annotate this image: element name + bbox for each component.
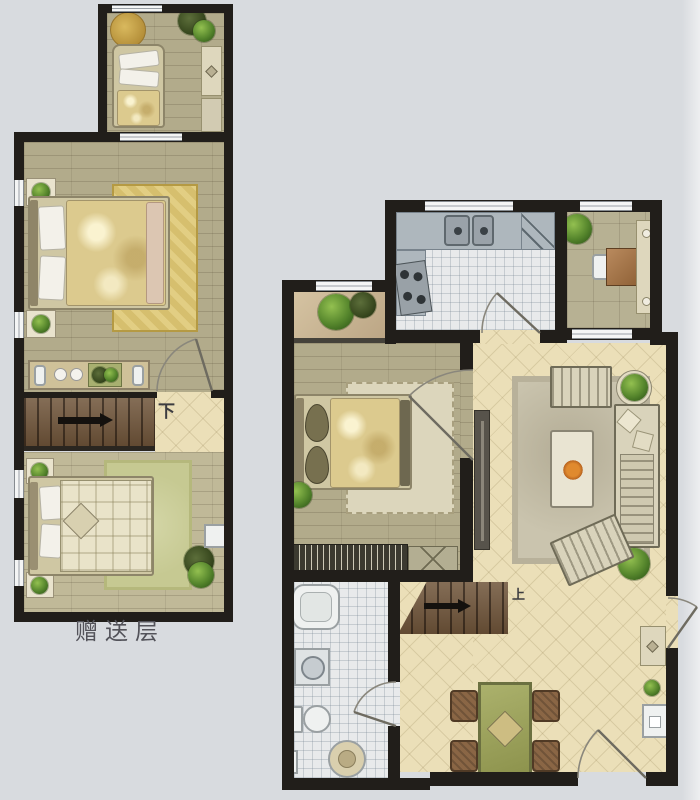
foot-blanket	[146, 202, 164, 304]
plant-icon	[32, 315, 50, 333]
stairs-down-label: 下	[158, 404, 175, 421]
plant-icon	[188, 562, 214, 588]
wall	[460, 458, 473, 570]
bookshelf-icon	[292, 544, 408, 572]
basin-icon	[328, 740, 366, 778]
footboard	[400, 400, 410, 486]
lamp-icon	[34, 365, 46, 386]
burner	[403, 291, 413, 301]
plant-icon	[644, 680, 660, 696]
cabinet-icon	[201, 98, 222, 132]
lamp-icon	[132, 365, 144, 386]
burner	[413, 272, 423, 282]
plant-icon	[193, 20, 215, 42]
wall	[211, 390, 224, 398]
plant-icon	[104, 368, 118, 382]
wall	[14, 132, 111, 142]
dish-icon	[54, 368, 67, 381]
wall	[388, 726, 400, 778]
pillow-icon	[118, 68, 159, 87]
window-icon	[14, 560, 24, 586]
pillow-icon	[305, 404, 329, 442]
toilet-icon	[303, 705, 331, 733]
dining-chair-icon	[450, 740, 478, 772]
plant-icon	[621, 374, 648, 401]
duvet	[330, 398, 400, 488]
tv-console-icon	[474, 410, 490, 550]
wall	[282, 280, 294, 790]
tv-screen	[481, 421, 484, 541]
bay-plant-icon	[350, 292, 376, 318]
stair-arrow-head	[100, 413, 113, 427]
dining-chair-icon	[532, 690, 560, 722]
cabinet-panel	[649, 716, 661, 728]
burner	[416, 294, 426, 304]
small-table-icon	[606, 248, 640, 286]
window-icon	[112, 5, 162, 12]
stair-arrow	[58, 417, 100, 424]
centerpiece-icon	[487, 711, 524, 748]
cabinet-icon	[408, 546, 458, 572]
stair-landing-floor	[155, 392, 224, 452]
bedroom-door-threshold	[460, 370, 473, 458]
stair-arrow	[424, 603, 458, 609]
balcony-door-threshold	[666, 596, 678, 648]
floor-plan-canvas: 下 赠送层	[0, 0, 700, 800]
pillow-icon	[38, 255, 66, 300]
dresser-icon	[28, 360, 150, 390]
planter-box-icon	[88, 363, 122, 387]
coffee-table-icon	[550, 430, 594, 508]
drain	[480, 227, 488, 235]
corner-planter	[26, 310, 56, 338]
double-bed-icon	[294, 394, 412, 490]
wall	[282, 570, 473, 582]
wall	[555, 212, 567, 332]
loveseat-icon	[550, 366, 612, 408]
washing-machine-icon	[294, 648, 330, 686]
headboard	[30, 482, 38, 570]
tub-inner	[300, 592, 332, 622]
shoe-cabinet-icon	[640, 626, 666, 666]
wall	[98, 4, 107, 141]
stairs-up-label: 上	[512, 589, 525, 602]
kitchen-door-threshold	[480, 330, 540, 344]
wall	[430, 772, 578, 786]
flower-decor-icon	[563, 460, 583, 480]
burner	[399, 269, 409, 279]
sofa-cushions	[620, 454, 654, 544]
window-icon	[14, 470, 24, 498]
window-icon	[572, 329, 632, 339]
staircase-down	[24, 398, 155, 446]
window-icon	[425, 201, 513, 211]
basin-bowl	[338, 750, 356, 768]
wall	[14, 392, 157, 398]
bed-icon	[28, 476, 154, 576]
pillow-icon	[118, 50, 160, 71]
window-icon	[14, 180, 24, 206]
plant-icon	[31, 577, 48, 594]
pillow-icon	[305, 446, 329, 484]
dining-chair-icon	[532, 740, 560, 772]
headboard	[296, 398, 304, 488]
washer-drum	[301, 656, 325, 680]
corner-counter	[521, 212, 555, 250]
lower-plan-title: 赠送层	[50, 618, 190, 648]
pillow-icon	[38, 205, 66, 250]
wall	[385, 200, 396, 344]
round-rug-icon	[110, 12, 146, 48]
wall	[650, 200, 662, 345]
paper-edge-highlight	[682, 0, 700, 800]
wall	[224, 4, 233, 622]
headboard	[30, 200, 38, 306]
window-icon	[580, 201, 632, 211]
dining-table-icon	[478, 682, 532, 776]
cabinet-handle	[646, 640, 659, 653]
window-icon	[316, 281, 372, 291]
wall	[646, 772, 678, 786]
bathtub-icon	[292, 584, 340, 630]
window-icon	[14, 312, 24, 338]
throw-pillow-icon	[632, 430, 654, 452]
dining-chair-icon	[450, 690, 478, 722]
wall	[282, 778, 430, 790]
wall	[666, 332, 678, 596]
sink-icon	[472, 215, 494, 246]
window-icon	[120, 133, 182, 141]
cabinet-handle	[205, 65, 218, 78]
wall	[666, 648, 678, 772]
double-bed-icon	[28, 196, 170, 310]
wall	[388, 582, 400, 682]
duvet	[117, 90, 160, 126]
single-bed-icon	[112, 44, 165, 128]
stair-arrow-head	[458, 599, 471, 613]
sink-icon	[444, 215, 470, 246]
bay-plant-icon	[318, 294, 354, 330]
wall	[396, 330, 480, 343]
stair-edge	[24, 446, 155, 451]
drain	[454, 227, 462, 235]
wall	[460, 343, 473, 370]
wardrobe-icon	[201, 46, 222, 96]
dish-icon	[70, 368, 83, 381]
